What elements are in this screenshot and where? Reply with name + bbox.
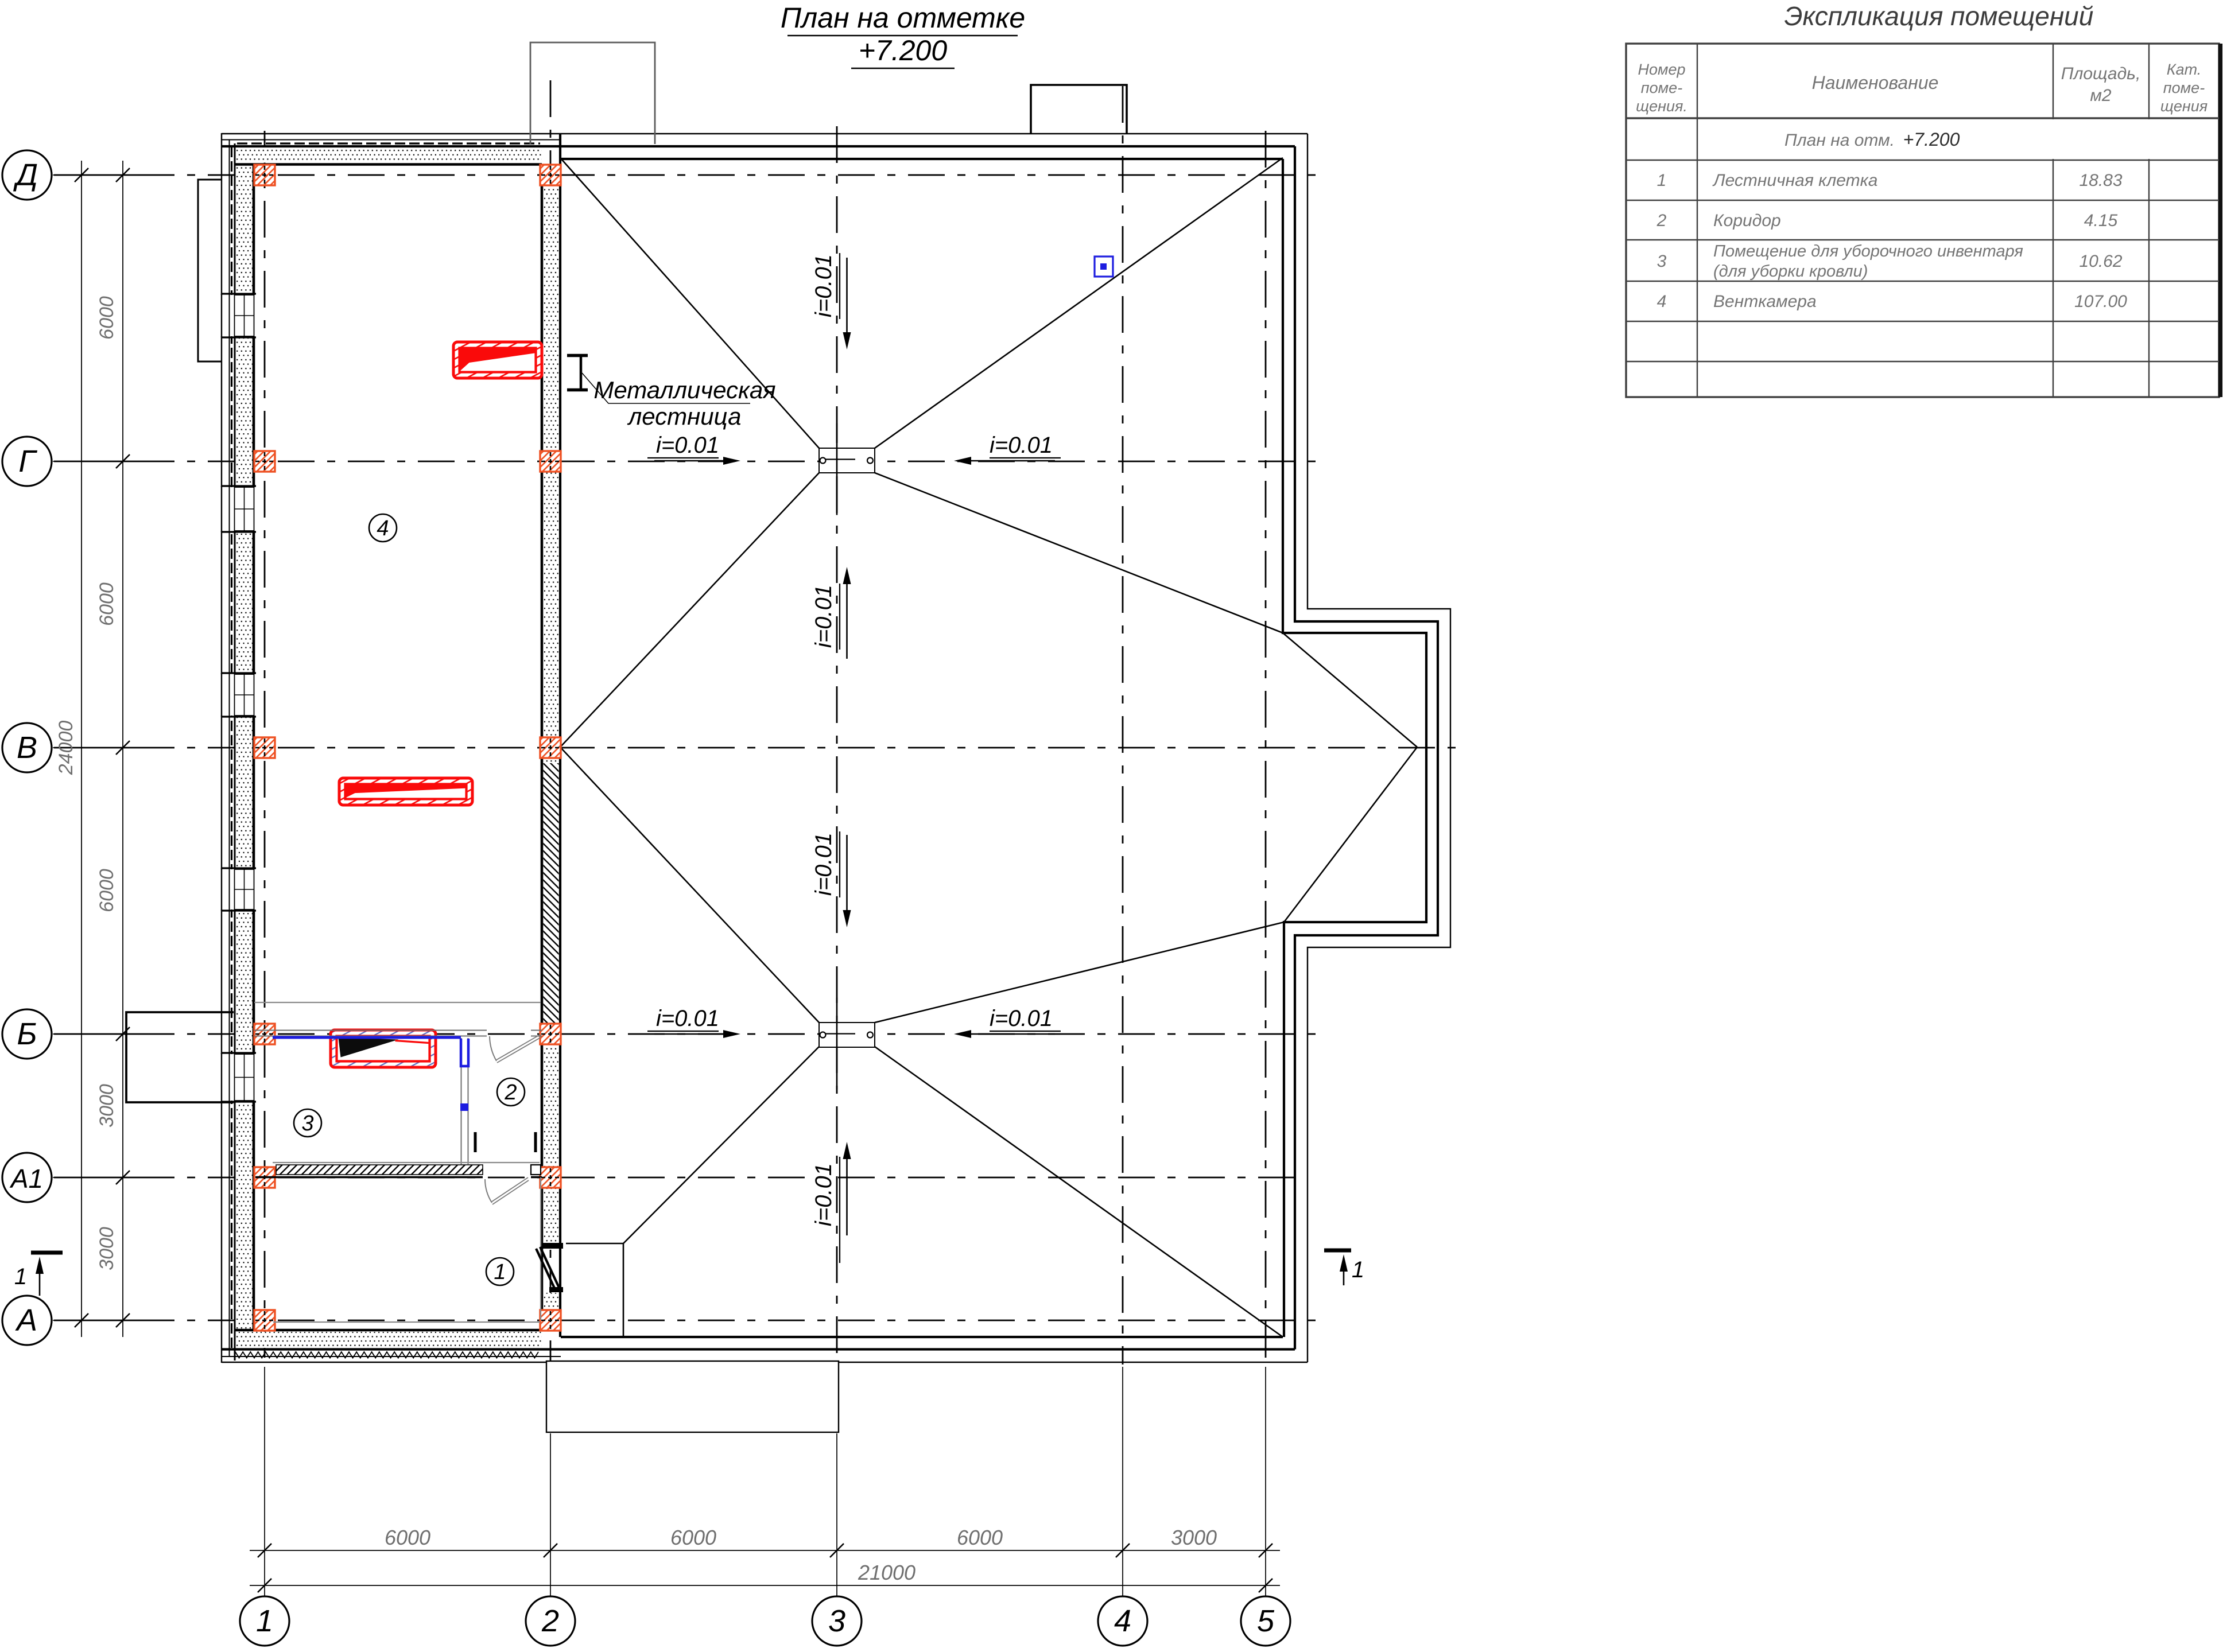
svg-text:i=0.01: i=0.01 xyxy=(811,833,836,896)
svg-text:6000: 6000 xyxy=(957,1526,1003,1549)
svg-text:лестница: лестница xyxy=(627,403,742,430)
svg-text:3000: 3000 xyxy=(96,1084,118,1128)
svg-text:поме-: поме- xyxy=(2163,79,2205,96)
svg-text:Помещение для уборочного инвен: Помещение для уборочного инвентаря xyxy=(1713,242,2023,261)
svg-text:щения: щения xyxy=(2160,98,2208,115)
svg-text:1: 1 xyxy=(494,1260,506,1284)
svg-text:3: 3 xyxy=(1657,252,1667,271)
svg-text:Коридор: Коридор xyxy=(1713,211,1781,230)
svg-text:Лестничная клетка: Лестничная клетка xyxy=(1712,171,1877,190)
svg-text:Экспликация помещений: Экспликация помещений xyxy=(1784,1,2094,31)
svg-text:4: 4 xyxy=(377,516,389,541)
svg-text:i=0.01: i=0.01 xyxy=(656,1006,719,1031)
svg-text:4: 4 xyxy=(1114,1604,1131,1638)
svg-text:4: 4 xyxy=(1657,292,1667,311)
svg-text:i=0.01: i=0.01 xyxy=(990,433,1053,458)
svg-text:1: 1 xyxy=(1657,171,1667,190)
svg-text:поме-: поме- xyxy=(1641,79,1682,96)
svg-text:6000: 6000 xyxy=(670,1526,716,1549)
svg-text:3000: 3000 xyxy=(96,1227,118,1270)
svg-text:Площадь,: Площадь, xyxy=(2061,64,2141,83)
svg-text:(для уборки кровли): (для уборки кровли) xyxy=(1713,262,1868,281)
svg-text:Б: Б xyxy=(17,1017,37,1051)
svg-text:щения.: щения. xyxy=(1636,98,1687,115)
svg-text:6000: 6000 xyxy=(385,1526,430,1549)
svg-text:24000: 24000 xyxy=(55,721,77,776)
svg-text:3000: 3000 xyxy=(1171,1526,1217,1549)
svg-text:+7.200: +7.200 xyxy=(1903,129,1960,150)
svg-text:3: 3 xyxy=(301,1111,313,1136)
svg-text:2: 2 xyxy=(1656,211,1667,230)
svg-text:А: А xyxy=(15,1303,37,1338)
svg-text:6000: 6000 xyxy=(96,296,118,340)
svg-text:Наименование: Наименование xyxy=(1812,72,1939,93)
svg-text:Д: Д xyxy=(13,158,38,192)
svg-text:18.83: 18.83 xyxy=(2079,171,2122,190)
svg-text:i=0.01: i=0.01 xyxy=(656,433,719,458)
svg-text:Металлическая: Металлическая xyxy=(593,376,775,403)
svg-text:1: 1 xyxy=(256,1604,273,1638)
svg-text:i=0.01: i=0.01 xyxy=(811,1163,836,1226)
svg-text:10.62: 10.62 xyxy=(2079,252,2122,271)
svg-text:Кат.: Кат. xyxy=(2167,61,2202,78)
svg-text:Номер: Номер xyxy=(1638,61,1685,78)
svg-text:Г: Г xyxy=(18,444,37,479)
svg-text:2: 2 xyxy=(504,1080,517,1105)
svg-text:Венткамера: Венткамера xyxy=(1713,292,1817,311)
svg-text:План на отметке: План на отметке xyxy=(781,2,1025,34)
svg-text:i=0.01: i=0.01 xyxy=(811,585,836,648)
svg-text:3: 3 xyxy=(828,1604,845,1638)
svg-text:21000: 21000 xyxy=(858,1561,915,1584)
svg-text:6000: 6000 xyxy=(96,869,118,912)
svg-text:1: 1 xyxy=(1352,1257,1364,1282)
svg-text:107.00: 107.00 xyxy=(2074,292,2127,311)
svg-text:6000: 6000 xyxy=(96,582,118,626)
svg-text:1: 1 xyxy=(14,1264,27,1289)
svg-text:5: 5 xyxy=(1257,1604,1275,1638)
svg-text:В: В xyxy=(17,730,37,765)
svg-text:План на отм.: План на отм. xyxy=(1784,131,1895,150)
svg-text:м2: м2 xyxy=(2090,86,2112,105)
svg-text:А1: А1 xyxy=(9,1164,43,1194)
svg-text:i=0.01: i=0.01 xyxy=(990,1006,1053,1031)
svg-text:4.15: 4.15 xyxy=(2084,211,2118,230)
svg-text:i=0.01: i=0.01 xyxy=(811,254,836,317)
svg-text:2: 2 xyxy=(541,1604,559,1638)
svg-text:+7.200: +7.200 xyxy=(859,34,948,67)
